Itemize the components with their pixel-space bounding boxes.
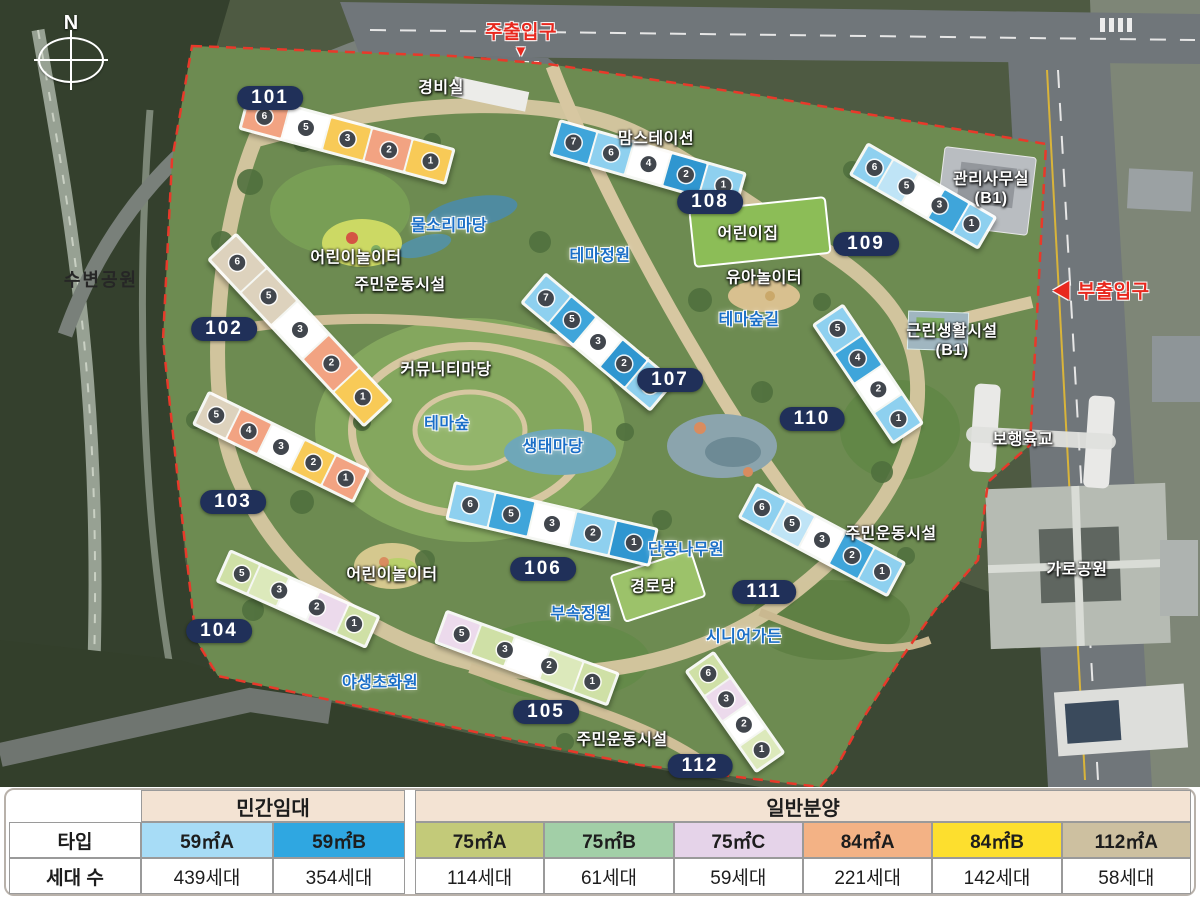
- count-cell-75㎡C: 59세대: [674, 858, 803, 894]
- row-label-type: 타입: [9, 822, 141, 858]
- type-cell-59㎡A: 59㎡A: [141, 822, 273, 858]
- label-residents-sports-south: 주민운동시설: [576, 730, 667, 749]
- label-water-sound-yard: 물소리마당: [411, 216, 487, 235]
- type-cell-75㎡A: 75㎡A: [415, 822, 544, 858]
- label-line: 주출입구: [485, 22, 557, 45]
- label-line: 관리사무실: [953, 170, 1029, 189]
- building-badge-111: 111: [732, 580, 796, 604]
- label-annex-garden: 부속정원: [551, 604, 612, 623]
- building-badge-109: 109: [833, 232, 899, 256]
- label-street-park: 가로공원: [1047, 560, 1108, 579]
- label-neighborhood-facility: 근린생활시설(B1): [906, 322, 997, 360]
- label-side-entrance: ◀ 부출입구: [1052, 282, 1149, 305]
- label-maple-tree-garden: 단풍나무원: [648, 540, 724, 559]
- label-senior-center: 경로당: [630, 577, 676, 596]
- table-gap: [405, 822, 415, 858]
- building-badge-103: 103: [200, 490, 266, 514]
- label-community-yard: 커뮤니티마당: [400, 360, 491, 379]
- building-badge-108: 108: [677, 190, 743, 214]
- count-cell-59㎡A: 439세대: [141, 858, 273, 894]
- site-plan-screenshot: 6532165321543215321532165321753217642165…: [0, 0, 1200, 900]
- count-cell-59㎡B: 354세대: [273, 858, 405, 894]
- label-theme-garden: 테마정원: [570, 246, 631, 265]
- count-cell-75㎡B: 61세대: [544, 858, 673, 894]
- count-cell-84㎡B: 142세대: [932, 858, 1061, 894]
- site-plan-map: 6532165321543215321532165321753217642165…: [0, 0, 1200, 787]
- table-gap: [405, 858, 415, 894]
- compass: N: [36, 12, 106, 92]
- building-badge-107: 107: [637, 368, 703, 392]
- label-line: (B1): [953, 189, 1029, 208]
- building-badge-104: 104: [186, 619, 252, 643]
- type-cell-75㎡B: 75㎡B: [544, 822, 673, 858]
- count-cell-112㎡A: 58세대: [1062, 858, 1191, 894]
- label-line: ▼: [485, 45, 557, 59]
- label-residents-sports-east: 주민운동시설: [845, 524, 936, 543]
- label-main-entrance: 주출입구▼: [485, 22, 557, 58]
- row-label-count: 세대 수: [9, 858, 141, 894]
- label-senior-garden: 시니어가든: [706, 627, 782, 646]
- type-cell-84㎡B: 84㎡B: [932, 822, 1061, 858]
- label-theme-forest-trail: 테마숲길: [719, 310, 780, 329]
- label-toddler-playground: 유아놀이터: [726, 268, 802, 287]
- table-corner-cell: [9, 790, 141, 822]
- type-cell-84㎡A: 84㎡A: [803, 822, 932, 858]
- type-cell-75㎡C: 75㎡C: [674, 822, 803, 858]
- label-guard-office: 경비실: [418, 78, 464, 97]
- label-wildflower-garden: 야생초화원: [342, 673, 418, 692]
- labels-layer: 주출입구▼경비실맘스테이션관리사무실(B1)물소리마당어린이놀이터주민운동시설수…: [0, 0, 1200, 787]
- building-badge-102: 102: [191, 317, 257, 341]
- label-pedestrian-bridge: 보행육교: [993, 430, 1054, 449]
- label-theme-forest: 테마숲: [424, 414, 470, 433]
- building-badge-112: 112: [668, 754, 733, 778]
- type-cell-59㎡B: 59㎡B: [273, 822, 405, 858]
- type-cell-112㎡A: 112㎡A: [1062, 822, 1191, 858]
- label-daycare-center: 어린이집: [718, 224, 779, 243]
- building-badge-110: 110: [780, 407, 845, 431]
- group-header-sale: 일반분양: [415, 790, 1191, 822]
- label-children-playground-north: 어린이놀이터: [310, 248, 401, 267]
- count-cell-75㎡A: 114세대: [415, 858, 544, 894]
- label-children-playground-south: 어린이놀이터: [346, 565, 437, 584]
- building-badge-101: 101: [237, 86, 303, 110]
- unit-type-table: 민간임대일반분양타입세대 수59㎡A439세대59㎡B354세대75㎡A114세…: [9, 790, 1191, 894]
- unit-table-panel: 민간임대일반분양타입세대 수59㎡A439세대59㎡B354세대75㎡A114세…: [4, 788, 1196, 896]
- label-waterside-park: 수변공원: [64, 270, 138, 292]
- group-header-rental: 민간임대: [141, 790, 405, 822]
- label-management-office: 관리사무실(B1): [953, 170, 1029, 208]
- count-cell-84㎡A: 221세대: [803, 858, 932, 894]
- label-residents-sports-north: 주민운동시설: [354, 275, 445, 294]
- label-eco-yard: 생태마당: [523, 437, 584, 456]
- compass-dial: [38, 37, 104, 83]
- label-mom-station: 맘스테이션: [618, 129, 694, 148]
- building-badge-105: 105: [513, 700, 579, 724]
- building-badge-106: 106: [510, 557, 576, 581]
- label-line: 근린생활시설: [906, 322, 997, 341]
- table-gap: [405, 790, 415, 822]
- label-line: (B1): [906, 341, 997, 360]
